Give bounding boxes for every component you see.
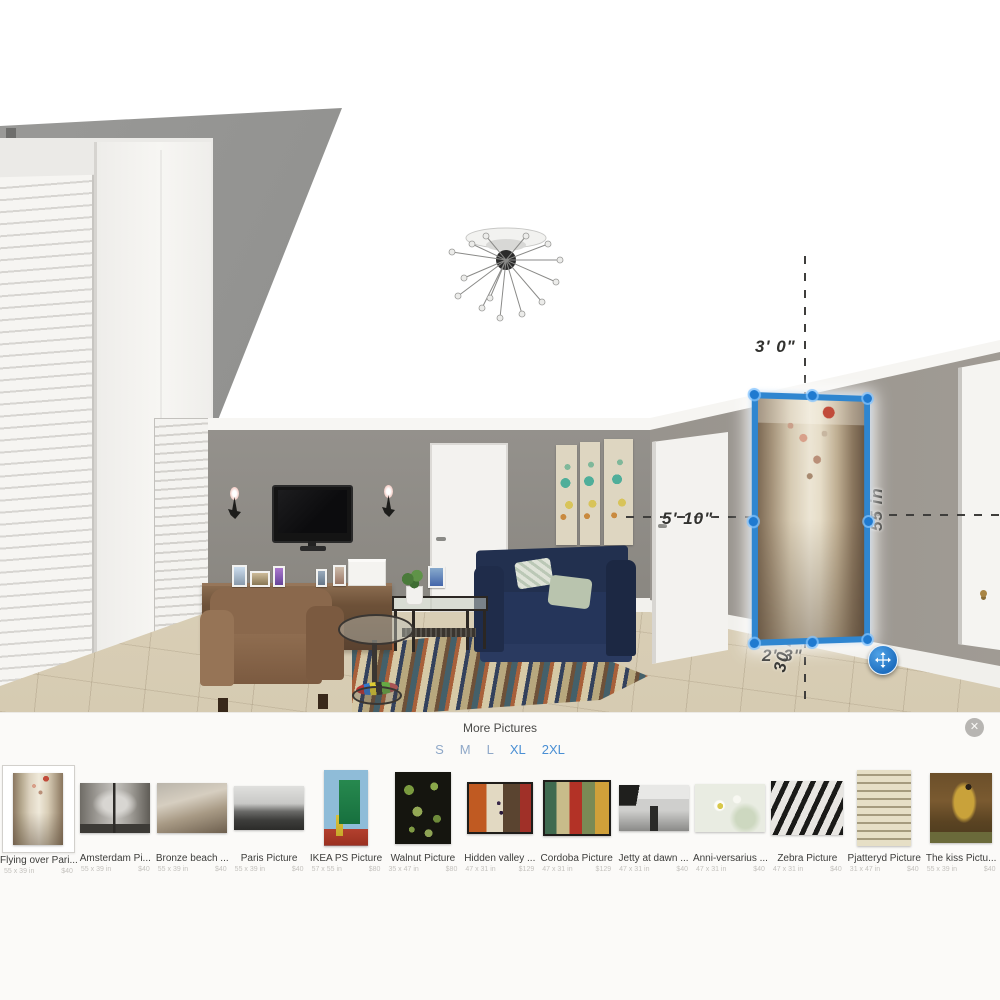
item-dims: 47 x 31 in — [696, 866, 726, 873]
item-price: $40 — [215, 866, 227, 873]
sofa-pillow-green — [547, 575, 592, 610]
photo-frame — [273, 566, 285, 587]
dimension-label-height: 55 in — [867, 507, 925, 531]
resize-handle[interactable] — [749, 517, 758, 526]
size-option-s[interactable]: S — [435, 742, 444, 757]
app-window: 3' 0" 5' 10" 55 in 2' 3" 30 in More Pict… — [0, 0, 1000, 1000]
picture-item-cordoba[interactable]: Cordoba Picture 47 x 31 in$129 — [538, 765, 615, 875]
picture-thumbnail-strip: Flying over Pari... 55 x 39 in$40 Amster… — [0, 765, 1000, 875]
room-3d-view[interactable]: 3' 0" 5' 10" 55 in 2' 3" 30 in — [0, 0, 1000, 712]
item-price: $40 — [907, 866, 919, 873]
louver-shutter-left — [0, 175, 94, 712]
picture-item-jetty-at-dawn[interactable]: Jetty at dawn ... 47 x 31 in$40 — [615, 765, 692, 875]
wall-art-panel-3[interactable] — [604, 439, 633, 545]
item-price: $129 — [596, 866, 612, 873]
door-handle — [436, 537, 446, 541]
armchair-arm-right — [306, 606, 344, 680]
picture-thumbnail — [157, 783, 227, 833]
picture-thumbnail — [543, 780, 611, 836]
item-price: $40 — [292, 866, 304, 873]
white-storage-box — [348, 559, 386, 586]
item-dims: 47 x 31 in — [542, 866, 572, 873]
item-dims: 55 x 39 in — [4, 868, 34, 875]
picture-thumbnail — [13, 773, 63, 845]
size-option-2xl[interactable]: 2XL — [542, 742, 565, 757]
item-price: $129 — [519, 866, 535, 873]
resize-handle[interactable] — [808, 391, 817, 400]
selected-wall-picture[interactable] — [752, 392, 870, 646]
item-price: $40 — [138, 866, 150, 873]
round-side-table[interactable] — [338, 614, 414, 645]
side-table-base — [352, 686, 402, 705]
armchair-leg — [318, 694, 328, 709]
close-panel-button[interactable]: ✕ — [965, 718, 984, 737]
picture-item-paris[interactable]: Paris Picture 55 x 39 in$40 — [231, 765, 308, 875]
item-dims: 35 x 47 in — [388, 866, 418, 873]
picture-thumbnail — [234, 786, 304, 830]
picture-thumbnail — [695, 784, 765, 832]
photo-frame — [428, 566, 445, 588]
item-dims: 47 x 31 in — [773, 866, 803, 873]
tv-stand-foot — [300, 546, 326, 551]
resize-handle[interactable] — [863, 394, 872, 403]
sofa-pillow-white — [514, 557, 554, 589]
picture-item-zebra[interactable]: Zebra Picture 47 x 31 in$40 — [769, 765, 846, 875]
tv-screen — [278, 490, 347, 533]
item-price: $40 — [61, 868, 73, 875]
item-price: $80 — [446, 866, 458, 873]
wall-art-panel-1[interactable] — [556, 445, 577, 545]
item-dims: 57 x 55 in — [312, 866, 342, 873]
picture-item-amsterdam[interactable]: Amsterdam Pi... 55 x 39 in$40 — [77, 765, 154, 875]
photo-frame — [333, 565, 346, 586]
item-price: $40 — [830, 866, 842, 873]
vertical-dimension-line-top — [804, 256, 806, 396]
picture-thumbnail — [467, 782, 533, 834]
size-option-m[interactable]: M — [460, 742, 471, 757]
picture-item-ikea-ps[interactable]: IKEA PS Picture 57 x 55 in$80 — [308, 765, 385, 875]
size-option-l[interactable]: L — [487, 742, 494, 757]
picture-item-anni-versarius[interactable]: Anni-versarius ... 47 x 31 in$40 — [692, 765, 769, 875]
move-arrows-icon — [875, 652, 891, 668]
picture-thumbnail — [395, 772, 451, 844]
armchair-arm-left — [200, 610, 234, 686]
item-dims: 31 x 47 in — [850, 866, 880, 873]
armchair-leg — [218, 698, 228, 712]
wall-sconce-left[interactable] — [226, 487, 242, 521]
picture-item-walnut[interactable]: Walnut Picture 35 x 47 in$80 — [384, 765, 461, 875]
coffee-table-leg — [483, 609, 486, 649]
photo-frame — [250, 571, 270, 587]
far-right-door-handle — [980, 590, 987, 597]
picture-item-pjatteryd[interactable]: Pjatteryd Picture 31 x 47 in$40 — [846, 765, 923, 875]
photo-frame — [316, 569, 327, 587]
item-price: $40 — [753, 866, 765, 873]
picture-item-flying-over-paris[interactable]: Flying over Pari... 55 x 39 in$40 — [0, 765, 77, 875]
wall-art-panel-2[interactable] — [580, 442, 600, 545]
item-dims: 47 x 31 in — [465, 866, 495, 873]
size-filter-row: S M L XL 2XL — [0, 742, 1000, 757]
picture-thumbnail — [771, 781, 843, 835]
move-picture-button[interactable] — [868, 645, 898, 675]
picture-item-hidden-valley[interactable]: Hidden valley ... 47 x 31 in$129 — [461, 765, 538, 875]
sofa-arm-right — [606, 560, 636, 656]
panel-title: More Pictures — [0, 721, 1000, 735]
plant — [400, 568, 426, 590]
item-dims: 55 x 39 in — [927, 866, 957, 873]
size-option-xl[interactable]: XL — [510, 742, 526, 757]
picture-item-the-kiss[interactable]: The kiss Pictu... 55 x 39 in$40 — [923, 765, 1000, 875]
item-dims: 55 x 39 in — [158, 866, 188, 873]
picture-thumbnail — [857, 770, 911, 846]
item-price: $80 — [369, 866, 381, 873]
resize-handle[interactable] — [750, 390, 759, 400]
item-dims: 47 x 31 in — [619, 866, 649, 873]
more-pictures-panel: More Pictures S M L XL 2XL ✕ Flying over… — [0, 712, 1000, 1000]
resize-handle[interactable] — [864, 517, 873, 526]
picture-item-bronze-beach[interactable]: Bronze beach ... 55 x 39 in$40 — [154, 765, 231, 875]
dimension-label-above: 3' 0" — [755, 337, 796, 357]
wall-sconce-right[interactable] — [380, 485, 396, 519]
photo-frame — [232, 565, 247, 587]
picture-thumbnail — [80, 783, 150, 833]
picture-thumbnail — [324, 770, 368, 846]
item-dims: 55 x 39 in — [81, 866, 111, 873]
picture-thumbnail — [930, 773, 992, 843]
item-dims: 55 x 39 in — [235, 866, 265, 873]
sputnik-chandelier[interactable] — [430, 222, 582, 344]
tv[interactable] — [272, 485, 353, 543]
item-price: $40 — [676, 866, 688, 873]
item-price: $40 — [984, 866, 996, 873]
dimension-label-left: 5' 10" — [662, 509, 713, 529]
picture-thumbnail — [619, 785, 689, 831]
